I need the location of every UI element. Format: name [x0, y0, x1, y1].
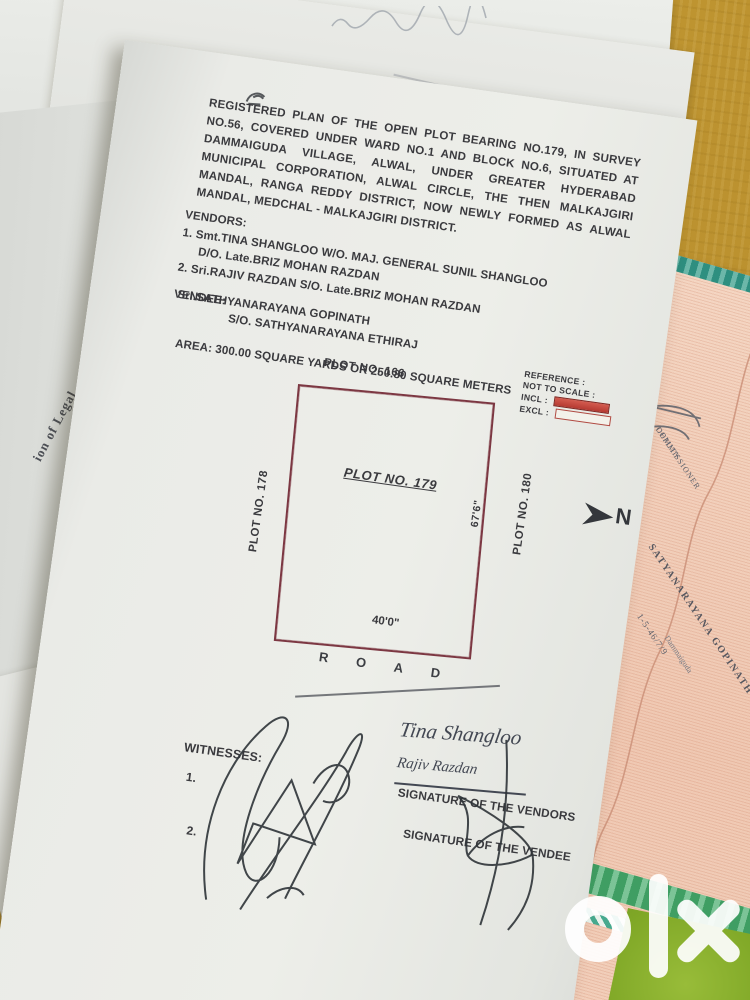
plot-178-label: PLOT NO. 178	[247, 469, 270, 553]
north-arrow-icon	[582, 501, 615, 531]
north-letter: N	[614, 503, 633, 531]
registered-plan-document: REGISTERED PLAN OF THE OPEN PLOT BEARING…	[0, 40, 697, 1000]
olx-bar-icon	[649, 874, 668, 978]
photo-scene: ion of Legal My DEPUTY COMMISSIONER SATY…	[0, 0, 750, 1000]
plot-180-label: PLOT NO. 180	[511, 472, 534, 556]
witness-signature-scrawl	[143, 644, 420, 955]
north-indicator: N	[581, 497, 645, 539]
olx-x-icon	[675, 898, 741, 964]
olx-watermark	[563, 862, 743, 987]
plot-166-label: PLOT NO. 166	[323, 357, 405, 380]
vendee-signature-scrawl	[410, 722, 587, 946]
vendee-line-1: VENDEE: Sri.SATHYANARAYANA GOPINATH	[173, 287, 178, 300]
diagram-legend: REFERENCE : NOT TO SCALE : INCL : EXCL :	[519, 369, 660, 433]
olx-o-icon	[565, 896, 631, 962]
pencil-handwriting-icon	[328, 6, 498, 36]
